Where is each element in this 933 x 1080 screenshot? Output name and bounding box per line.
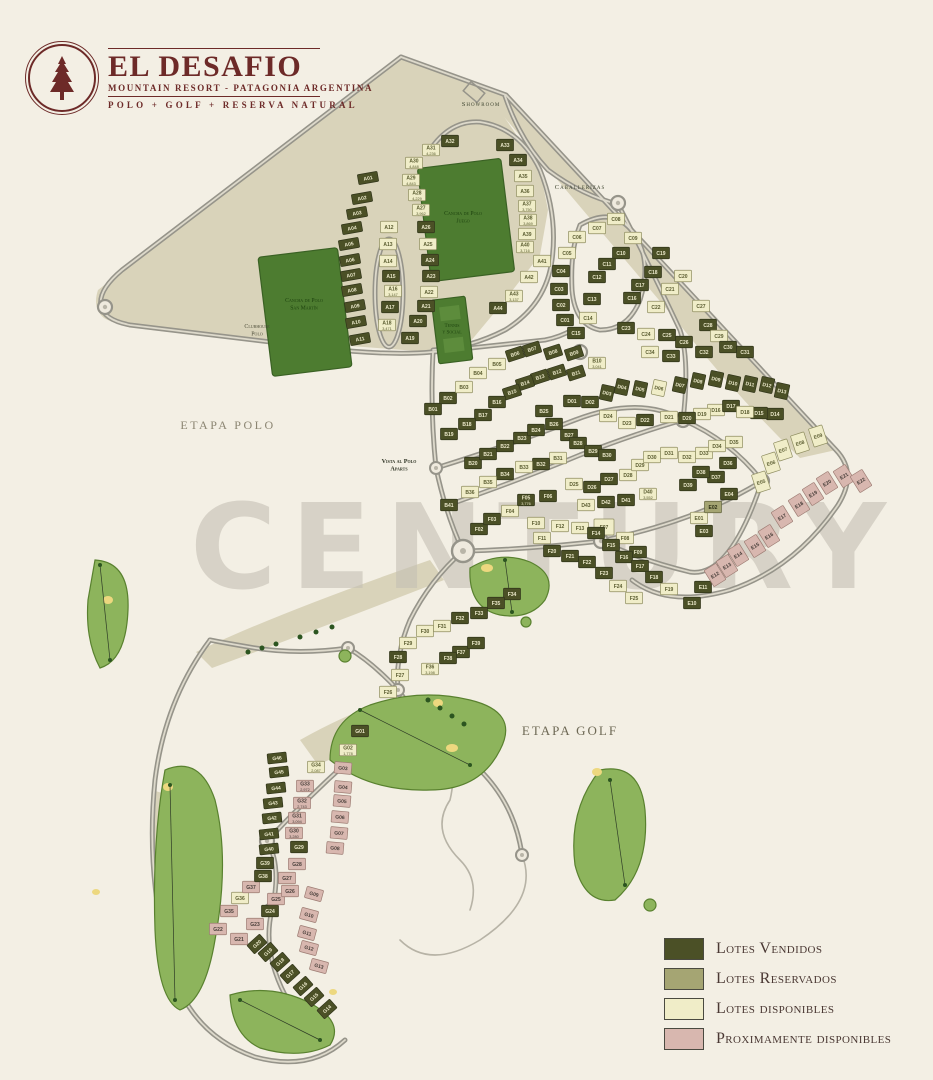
golf-green xyxy=(644,899,656,911)
lot-id-label: F25 xyxy=(630,596,639,602)
lot-id-label: C09 xyxy=(628,236,637,242)
lot-id-label: F10 xyxy=(532,521,541,527)
lot-F16: F16 xyxy=(616,551,633,563)
lot-F35: F35 xyxy=(488,597,505,609)
lot-id-label: B35 xyxy=(483,480,492,486)
lot-C23: C23 xyxy=(618,322,635,334)
lot-F36: F363,198 xyxy=(422,663,439,675)
lot-area-label: 3,280 xyxy=(289,835,299,839)
lot-id-label: C24 xyxy=(641,332,650,338)
lot-D41: D41 xyxy=(618,494,635,506)
lot-B24: B24 xyxy=(528,424,545,436)
lot-id-label: F38 xyxy=(444,656,453,662)
lot-id-label: C06 xyxy=(572,235,581,241)
lot-G41: G41 xyxy=(259,828,279,840)
logo-tagline: POLO + GOLF + RESERVA NATURAL xyxy=(108,100,320,110)
lot-C09: C09 xyxy=(625,232,642,244)
lot-id-label: D16 xyxy=(711,408,720,414)
lot-D23: D23 xyxy=(619,417,636,429)
lot-id-label: A42 xyxy=(524,275,533,281)
lot-B19: B19 xyxy=(441,428,458,440)
lot-C13: C13 xyxy=(584,293,601,305)
lot-A41: A41 xyxy=(534,255,551,267)
lot-id-label: G44 xyxy=(271,785,281,792)
map-label-etapa-golf: ETAPA GOLF xyxy=(522,723,618,738)
lot-area-label: 3,869 xyxy=(523,222,533,226)
roundabout xyxy=(611,196,625,210)
lot-id-label: F26 xyxy=(384,690,393,696)
lot-id-label: E02 xyxy=(709,505,718,511)
lot-id-label: G01 xyxy=(355,729,365,735)
lot-id-label: B17 xyxy=(478,413,487,419)
lot-id-label: F19 xyxy=(665,587,674,593)
lot-G42: G42 xyxy=(262,812,282,824)
lot-id-label: G26 xyxy=(285,889,295,895)
lot-id-label: E10 xyxy=(688,601,697,607)
lot-id-label: C10 xyxy=(616,251,625,257)
lot-id-label: G31 xyxy=(292,814,302,820)
lot-A27: A273,962 xyxy=(413,204,430,216)
lot-D11: D11 xyxy=(742,375,758,392)
lot-id-label: D19 xyxy=(697,412,706,418)
lot-F34: F34 xyxy=(504,588,521,600)
lot-C27: C27 xyxy=(693,300,710,312)
lot-A42: A42 xyxy=(521,271,538,283)
lot-id-label: D18 xyxy=(740,410,749,416)
sand-bunker xyxy=(446,744,458,752)
legend-item-s: Lotes Vendidos xyxy=(664,938,891,960)
lot-F04: F04 xyxy=(502,505,519,517)
lot-id-label: F06 xyxy=(544,494,553,500)
legend-label: Lotes disponibles xyxy=(716,1000,834,1018)
lot-F38: F38 xyxy=(440,652,457,664)
lot-D37: D37 xyxy=(708,471,725,483)
lot-F17: F17 xyxy=(632,560,649,572)
lot-id-label: C08 xyxy=(611,217,620,223)
lot-id-label: B04 xyxy=(473,371,482,377)
lot-G36: G36 xyxy=(232,892,249,904)
lot-id-label: F31 xyxy=(438,624,447,630)
lot-B28: B28 xyxy=(570,437,587,449)
lot-D39: D39 xyxy=(680,479,697,491)
lot-id-label: D41 xyxy=(621,498,630,504)
lot-id-label: D37 xyxy=(711,475,720,481)
lot-F33: F33 xyxy=(471,607,488,619)
lot-id-label: C15 xyxy=(571,331,580,337)
lot-id-label: F37 xyxy=(457,650,466,656)
lot-id-label: C23 xyxy=(621,326,630,332)
lot-id-label: B03 xyxy=(459,385,468,391)
lot-id-label: F11 xyxy=(538,536,547,542)
legend-label: Lotes Reservados xyxy=(716,970,837,988)
lot-area-label: 3,041 xyxy=(592,365,602,369)
lot-G05: G05 xyxy=(333,795,351,808)
lot-D36: D36 xyxy=(720,457,737,469)
lot-F26: F26 xyxy=(380,686,397,698)
lot-id-label: D30 xyxy=(647,455,656,461)
lot-A13: A13 xyxy=(380,238,397,250)
lot-E10: E10 xyxy=(684,597,701,609)
lot-A44: A44 xyxy=(490,302,507,314)
lot-G39: G39 xyxy=(257,857,274,869)
lot-F30: F30 xyxy=(417,625,434,637)
lot-C08: C08 xyxy=(608,213,625,225)
lot-E11: E11 xyxy=(695,581,712,593)
lot-C05: C05 xyxy=(559,247,576,259)
lot-F06: F06 xyxy=(540,490,557,502)
lot-G01: G01 xyxy=(352,725,369,737)
lot-id-label: C13 xyxy=(587,297,596,303)
lot-D10: D10 xyxy=(725,374,741,391)
lot-C01: C01 xyxy=(557,314,574,326)
map-label-etapa-polo: ETAPA POLO xyxy=(180,418,275,432)
lot-id-label: F16 xyxy=(620,555,629,561)
lot-G37: G37 xyxy=(243,881,260,893)
lot-id-label: E11 xyxy=(699,585,708,591)
golf-green xyxy=(339,650,351,662)
lot-id-label: G28 xyxy=(292,862,302,868)
lot-id-label: A14 xyxy=(383,259,392,265)
lot-F13: F13 xyxy=(572,522,589,534)
lot-id-label: A26 xyxy=(421,225,430,231)
lot-area-label: 4,229 xyxy=(412,197,422,201)
lot-id-label: B19 xyxy=(444,432,453,438)
lot-id-label: C07 xyxy=(592,226,601,232)
lot-C22: C22 xyxy=(648,301,665,313)
lot-id-label: A28 xyxy=(412,191,421,197)
lot-id-label: E03 xyxy=(700,529,709,535)
lot-id-label: G24 xyxy=(265,909,275,915)
lot-id-label: B02 xyxy=(443,396,452,402)
lot-C34: C34 xyxy=(642,346,659,358)
lot-id-label: B32 xyxy=(536,462,545,468)
lot-id-label: A36 xyxy=(520,189,529,195)
lot-C25: C25 xyxy=(659,329,676,341)
lot-id-label: A43 xyxy=(509,292,518,298)
lot-id-label: C01 xyxy=(560,318,569,324)
lot-area-label: 3,198 xyxy=(425,671,435,675)
lot-B25: B25 xyxy=(536,405,553,417)
lot-A38: A383,869 xyxy=(520,214,537,226)
lot-id-label: G37 xyxy=(246,885,256,891)
lot-id-label: G04 xyxy=(338,784,348,791)
lot-id-label: A15 xyxy=(386,274,395,280)
lot-B22: B22 xyxy=(497,440,514,452)
lot-A12: A12 xyxy=(381,221,398,233)
lot-D03: D03 xyxy=(599,384,615,401)
roundabout xyxy=(430,462,442,474)
lot-G44: G44 xyxy=(266,782,286,794)
legend-swatch xyxy=(664,998,704,1020)
lot-A31: A314,236 xyxy=(423,144,440,156)
lot-area-label: 3,137 xyxy=(509,298,519,302)
lot-area-label: 3,094 xyxy=(292,820,302,824)
map-label-caballerizas: Caballerizas xyxy=(555,184,606,191)
lot-G21: G21 xyxy=(231,933,248,945)
lot-id-label: A44 xyxy=(493,306,502,312)
lot-F05: F053,776 xyxy=(518,494,535,506)
lot-id-label: C18 xyxy=(648,270,657,276)
lot-A15: A15 xyxy=(383,270,400,282)
lot-id-label: F23 xyxy=(600,571,609,577)
lot-id-label: A34 xyxy=(513,158,522,164)
lot-C24: C24 xyxy=(638,328,655,340)
lot-B10: B103,041 xyxy=(589,357,606,369)
lot-id-label: B20 xyxy=(468,461,477,467)
lot-G33: G332,972 xyxy=(297,780,314,792)
logo-rule-bottom xyxy=(108,96,320,97)
lot-area-label: 3,471 xyxy=(382,327,392,331)
lot-id-label: B31 xyxy=(553,456,562,462)
sand-bunker xyxy=(92,889,100,895)
lot-A25: A25 xyxy=(420,238,437,250)
logo: EL DESAFIO MOUNTAIN RESORT - PATAGONIA A… xyxy=(28,44,320,112)
lot-C28: C28 xyxy=(700,319,717,331)
lot-E02: E02 xyxy=(705,501,722,513)
golf-green xyxy=(521,617,531,627)
lot-id-label: G34 xyxy=(311,763,321,769)
lot-A14: A14 xyxy=(380,255,397,267)
lot-id-label: F20 xyxy=(548,549,557,555)
lot-D32: D32 xyxy=(679,451,696,463)
lot-A29: A294,843 xyxy=(403,174,420,186)
lot-area-label: 1,778 xyxy=(343,752,353,756)
lot-id-label: B22 xyxy=(500,444,509,450)
lot-B30: B30 xyxy=(599,449,616,461)
lot-id-label: G45 xyxy=(274,769,284,776)
lot-id-label: G23 xyxy=(250,922,260,928)
lot-id-label: G27 xyxy=(282,876,292,882)
lot-G43: G43 xyxy=(263,797,283,809)
lot-G40: G40 xyxy=(259,843,279,855)
lot-G04: G04 xyxy=(334,781,352,794)
lot-area-label: 3,552 xyxy=(643,496,653,500)
lot-id-label: B41 xyxy=(444,503,453,509)
lot-A35: A35 xyxy=(515,170,532,182)
lot-id-label: G41 xyxy=(264,831,274,838)
logo-title: EL DESAFIO xyxy=(108,51,320,83)
lot-F22: F22 xyxy=(579,556,596,568)
lot-B05: B05 xyxy=(489,358,506,370)
lot-id-label: C31 xyxy=(740,350,749,356)
lot-C07: C07 xyxy=(589,222,606,234)
lot-C31: C31 xyxy=(737,346,754,358)
lot-A33: A33 xyxy=(497,139,514,151)
lot-id-label: F22 xyxy=(583,560,592,566)
lot-id-label: G39 xyxy=(260,861,270,867)
roundabout xyxy=(452,540,474,562)
lot-id-label: F12 xyxy=(556,524,565,530)
lot-id-label: D23 xyxy=(622,421,631,427)
lot-G03: G03 xyxy=(334,762,352,775)
lot-id-label: G08 xyxy=(330,845,340,852)
lot-id-label: A23 xyxy=(426,274,435,280)
lot-id-label: C21 xyxy=(665,287,674,293)
lot-id-label: D14 xyxy=(770,412,779,418)
roundabout xyxy=(98,300,112,314)
lot-id-label: E01 xyxy=(695,516,704,522)
lot-id-label: B29 xyxy=(588,449,597,455)
lot-id-label: B28 xyxy=(573,441,582,447)
sand-bunker xyxy=(592,768,602,776)
lot-id-label: D22 xyxy=(640,418,649,424)
lot-id-label: F35 xyxy=(492,601,501,607)
lot-id-label: A33 xyxy=(500,143,509,149)
lot-G45: G45 xyxy=(269,766,289,778)
lot-E04: E04 xyxy=(721,488,738,500)
lot-id-label: C29 xyxy=(714,334,723,340)
lot-id-label: F05 xyxy=(522,496,531,502)
lot-C03: C03 xyxy=(551,283,568,295)
lot-D01: D01 xyxy=(564,395,581,407)
lot-C10: C10 xyxy=(613,247,630,259)
lot-id-label: G30 xyxy=(289,829,299,835)
lot-D07: D07 xyxy=(672,376,688,393)
lot-F39: F39 xyxy=(468,637,485,649)
lot-id-label: C25 xyxy=(662,333,671,339)
lot-id-label: G21 xyxy=(234,937,244,943)
lot-id-label: G03 xyxy=(338,765,348,772)
lot-D13: D13 xyxy=(774,382,790,399)
lot-id-label: C14 xyxy=(583,316,592,322)
lot-id-label: C32 xyxy=(699,350,708,356)
lot-D12: D12 xyxy=(759,376,775,393)
lot-id-label: B33 xyxy=(519,465,528,471)
logo-emblem xyxy=(28,44,96,112)
legend-label: Proximamente disponibles xyxy=(716,1030,891,1048)
lot-F03: F03 xyxy=(484,513,501,525)
lot-id-label: A21 xyxy=(421,304,430,310)
lot-id-label: C17 xyxy=(635,283,644,289)
lot-B17: B17 xyxy=(475,409,492,421)
lot-id-label: D28 xyxy=(623,473,632,479)
lot-F21: F21 xyxy=(562,550,579,562)
lot-D24: D24 xyxy=(600,410,617,422)
lot-id-label: G36 xyxy=(235,896,245,902)
lot-B01: B01 xyxy=(425,403,442,415)
masterplan-page: CENTURY 21 xyxy=(0,0,933,1080)
lot-B03: B03 xyxy=(456,381,473,393)
lot-id-label: F09 xyxy=(634,550,643,556)
lot-G32: G322,743 xyxy=(294,797,311,809)
lot-id-label: D38 xyxy=(696,470,705,476)
lot-id-label: D43 xyxy=(581,503,590,509)
lot-id-label: D32 xyxy=(682,455,691,461)
sand-bunker xyxy=(481,564,493,572)
lot-F23: F23 xyxy=(596,567,613,579)
lot-id-label: A25 xyxy=(423,242,432,248)
lot-C19: C19 xyxy=(653,247,670,259)
lot-id-label: G38 xyxy=(258,874,268,880)
lot-id-label: G43 xyxy=(268,800,278,807)
lot-D30: D30 xyxy=(644,451,661,463)
lot-id-label: F04 xyxy=(506,509,515,515)
lot-G28: G28 xyxy=(289,858,306,870)
legend-item-p: Proximamente disponibles xyxy=(664,1028,891,1050)
lot-id-label: D26 xyxy=(587,485,596,491)
lot-id-label: A41 xyxy=(537,259,546,265)
lot-G46: G46 xyxy=(267,752,287,764)
tree-icon xyxy=(42,53,82,103)
lot-id-label: F28 xyxy=(394,655,403,661)
roundabout xyxy=(516,849,528,861)
lot-B02: B02 xyxy=(440,392,457,404)
lot-id-label: D40 xyxy=(643,490,652,496)
lot-id-label: D20 xyxy=(682,416,691,422)
lot-id-label: B36 xyxy=(465,490,474,496)
lot-id-label: G07 xyxy=(334,830,344,837)
lot-B16: B16 xyxy=(489,396,506,408)
lot-C12: C12 xyxy=(589,271,606,283)
lot-id-label: F13 xyxy=(576,526,585,532)
lot-id-label: C03 xyxy=(554,287,563,293)
lot-B36: B36 xyxy=(462,486,479,498)
lot-D09: D09 xyxy=(708,370,724,387)
lot-C29: C29 xyxy=(711,330,728,342)
lot-B26: B26 xyxy=(546,418,563,430)
lot-D34: D34 xyxy=(709,440,726,452)
lot-id-label: D35 xyxy=(729,440,738,446)
lot-id-label: D39 xyxy=(683,483,692,489)
lot-F12: F12 xyxy=(552,520,569,532)
lot-B31: B31 xyxy=(550,452,567,464)
lot-id-label: B10 xyxy=(592,359,601,365)
lot-id-label: D33 xyxy=(699,451,708,457)
logo-subtitle: MOUNTAIN RESORT - PATAGONIA ARGENTINA xyxy=(108,83,320,93)
lot-A21: A21 xyxy=(418,300,435,312)
lot-C30: C30 xyxy=(720,341,737,353)
lot-G38: G38 xyxy=(255,870,272,882)
lot-id-label: A13 xyxy=(383,242,392,248)
lot-C14: C14 xyxy=(580,312,597,324)
lot-A43: A433,137 xyxy=(506,290,523,302)
lot-F29: F29 xyxy=(400,637,417,649)
lot-id-label: F14 xyxy=(592,531,601,537)
lot-F10: F10 xyxy=(528,517,545,529)
lot-A30: A304,848 xyxy=(406,157,423,169)
lot-D21: D21 xyxy=(661,411,678,423)
lot-id-label: B34 xyxy=(500,472,509,478)
lot-E01: E01 xyxy=(691,512,708,524)
lot-A34: A34 xyxy=(510,154,527,166)
lot-id-label: A35 xyxy=(518,174,527,180)
lot-D27: D27 xyxy=(601,473,618,485)
lot-A26: A26 xyxy=(418,221,435,233)
lot-id-label: G05 xyxy=(337,798,347,805)
lot-F19: F19 xyxy=(661,583,678,595)
lot-C04: C04 xyxy=(553,265,570,277)
lot-id-label: B24 xyxy=(531,428,540,434)
lot-G06: G06 xyxy=(331,811,349,824)
lot-G31: G313,094 xyxy=(289,812,306,824)
lot-id-label: B16 xyxy=(492,400,501,406)
lot-id-label: A22 xyxy=(424,290,433,296)
lot-id-label: G35 xyxy=(224,909,234,915)
lot-D18: D18 xyxy=(737,406,754,418)
lot-id-label: A37 xyxy=(522,202,531,208)
lot-D08: D08 xyxy=(690,372,706,389)
lot-area-label: 3,750 xyxy=(522,208,532,212)
lot-area-label: 3,716 xyxy=(520,249,530,253)
logo-rule-top xyxy=(108,48,320,49)
sand-bunker xyxy=(329,989,337,995)
lot-F32: F32 xyxy=(452,612,469,624)
lot-id-label: G33 xyxy=(300,782,310,788)
lot-id-label: B25 xyxy=(539,409,548,415)
lot-id-label: F15 xyxy=(607,543,616,549)
lot-G27: G27 xyxy=(279,872,296,884)
lot-C26: C26 xyxy=(676,336,693,348)
